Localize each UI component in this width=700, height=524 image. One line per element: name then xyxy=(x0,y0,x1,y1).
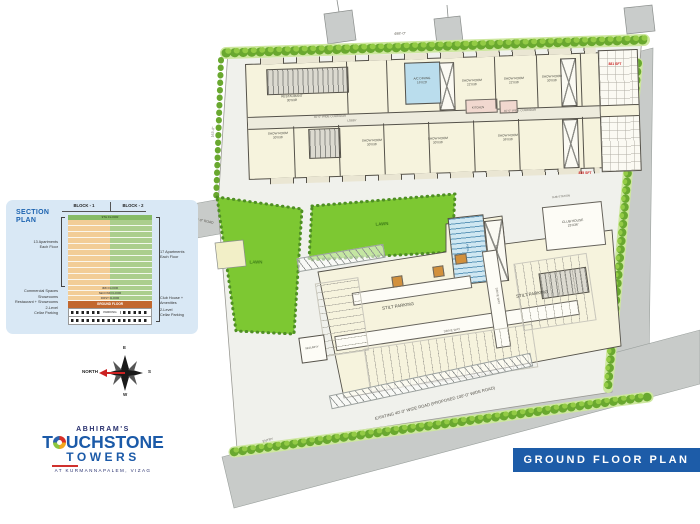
plan-label: 40'-0" WIDE CORRIDOR xyxy=(314,115,346,120)
section-plan-panel: SECTION PLAN BLOCK - 1 BLOCK - 2 9TH FLO… xyxy=(6,200,198,334)
floor-plan-banner: GROUND FLOOR PLAN xyxy=(513,448,700,472)
plan-label: STILT PARKING xyxy=(516,289,549,299)
plan-label: SHOW ROOM 30'X36' xyxy=(428,137,448,145)
plan-label: RAMP xyxy=(494,245,499,254)
block1-header: BLOCK - 1 xyxy=(61,203,107,208)
plan-label: 855 SFT xyxy=(578,171,591,175)
section-row: FIRST FLOOR xyxy=(68,296,152,301)
right-bracket-label: 17 Apartments Each Floor xyxy=(160,250,198,259)
compass-south-label: S xyxy=(148,369,151,374)
plan-label: SHOW ROOM 30'X36' xyxy=(362,139,382,147)
plan-label: SHOW ROOM 30'X36' xyxy=(542,75,562,83)
plan-label: SHOW ROOM 30'X36' xyxy=(268,132,288,140)
compass-east-label: E xyxy=(123,345,126,350)
plan-label: SECURITY xyxy=(305,345,319,350)
plan-label: LAWN xyxy=(375,221,388,227)
section-right-label: 2-Level Cellar Parking xyxy=(160,308,198,317)
plan-label: KITCHEN xyxy=(472,106,484,110)
plan-label: DRIVE WAY xyxy=(444,328,461,334)
plan-label: LAWN xyxy=(250,259,263,264)
section-tower: 9TH FLOOR3RD FLOORSECOND FLOORFIRST FLOO… xyxy=(68,215,152,325)
plan-label: SHOW ROOM 22'X36' xyxy=(504,77,524,85)
plan-label: POOL xyxy=(465,244,470,252)
section-left-label: Commercial Spaces xyxy=(8,289,58,294)
plan-label: DRIVE WAY xyxy=(494,288,500,305)
section-plan-title: SECTION PLAN xyxy=(16,209,49,225)
compass-west-label: W xyxy=(123,392,127,397)
block2-header: BLOCK - 2 xyxy=(110,203,156,208)
brand-name-sub: TOWERS xyxy=(36,450,170,464)
logo-swirl-icon xyxy=(53,436,66,449)
plan-label: A/C DINING 16'X20' xyxy=(413,77,430,85)
section-left-label: Showrooms xyxy=(8,295,58,300)
plan-label: 163'-0" xyxy=(211,127,216,138)
plan-label: 881 SFT xyxy=(608,62,621,66)
floor-plan-title: GROUND FLOOR PLAN xyxy=(524,454,690,466)
section-left-label: Restaurant + Showrooms xyxy=(8,300,58,305)
brand-logo: ABHIRAM'S TUCHSTONE TOWERS AT KURMANNAPA… xyxy=(36,426,170,473)
plan-label: STILT PARKING xyxy=(382,301,415,311)
plan-label: 40'-0" WIDE CORRIDOR xyxy=(504,109,536,114)
floor-plan-page: RESTAURANT 30'X38'A/C DINING 16'X20'KITC… xyxy=(0,0,700,524)
section-row xyxy=(68,317,152,325)
plan-label: 498'-0" xyxy=(394,32,406,37)
logo-red-rule xyxy=(52,465,78,467)
section-left-label: 2-Level Cellar Parking xyxy=(8,306,58,315)
plan-label: EXISTING 40'-0" WIDE ROAD (PROPOSED 100'… xyxy=(374,385,495,421)
section-row: PARKING xyxy=(68,308,152,317)
header-rule xyxy=(62,211,146,212)
left-bracket xyxy=(61,217,65,287)
section-row: GROUND FLOOR xyxy=(68,301,152,308)
plan-label: ENTRY xyxy=(262,438,273,444)
plan-label: SHOW ROOM 22'X36' xyxy=(462,79,482,87)
block-divider xyxy=(110,202,111,212)
right-bracket xyxy=(156,217,160,322)
plan-label: RESTAURANT 30'X38' xyxy=(281,95,303,103)
compass-north-label: NORTH xyxy=(74,369,98,374)
plan-label: SUB-STATION xyxy=(552,194,571,199)
brand-location: AT KURMANNAPALEM, VIZAG xyxy=(36,468,170,473)
plan-label: CLUB HOUSE 23'X36' xyxy=(562,219,584,229)
left-bracket-label: 13 Apartments Each Floor xyxy=(8,240,58,249)
section-right-label: Club House + Amenities xyxy=(160,296,198,305)
plan-label: SHOW ROOM 36'X36' xyxy=(498,134,518,142)
plan-label: LOBBY xyxy=(347,119,356,123)
brand-name-main: TUCHSTONE xyxy=(36,433,170,451)
